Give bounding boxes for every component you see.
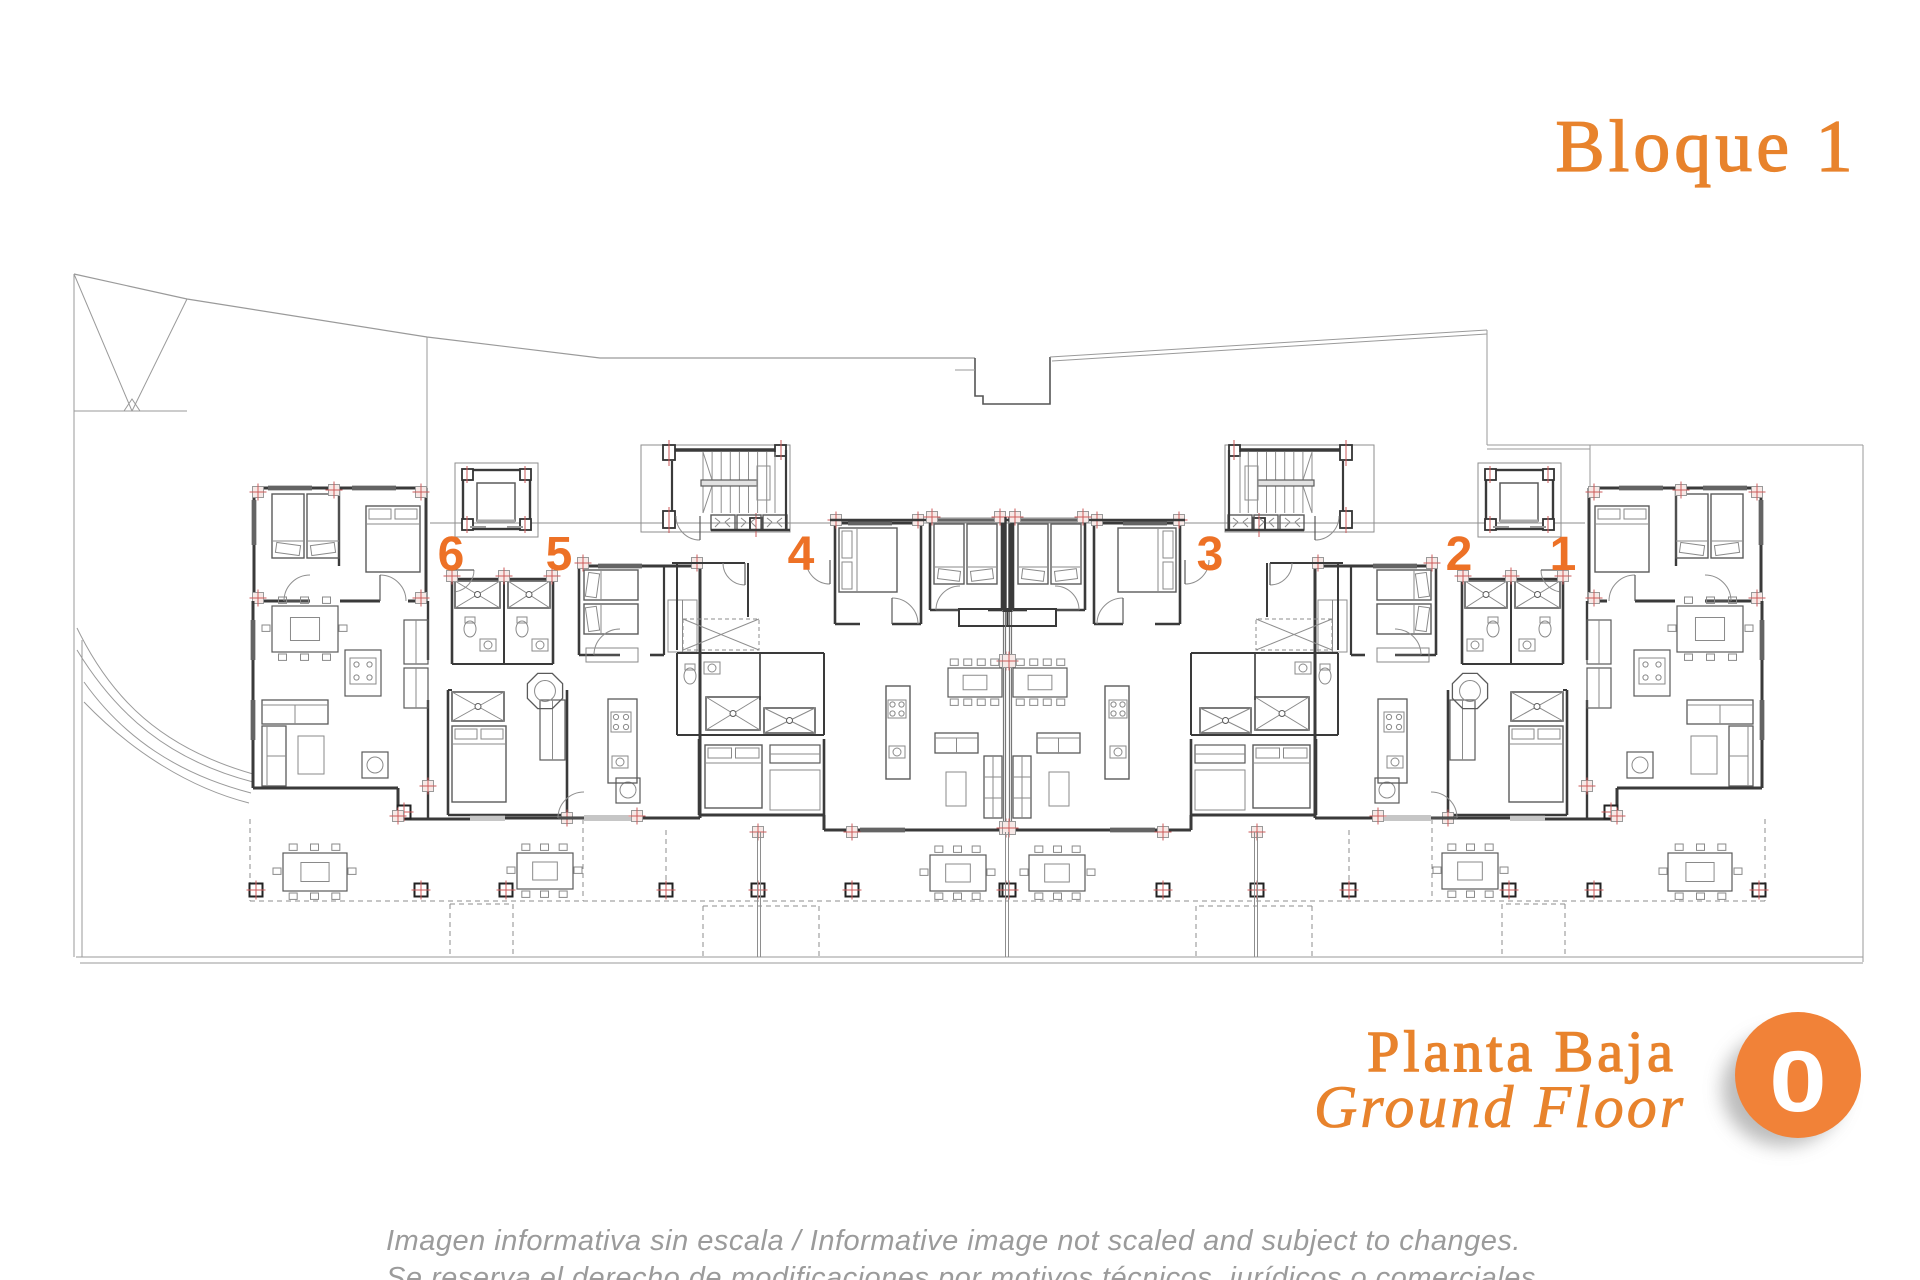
svg-text:6: 6 bbox=[438, 528, 465, 581]
svg-text:0: 0 bbox=[1769, 1034, 1826, 1130]
svg-text:5: 5 bbox=[546, 528, 573, 581]
svg-text:Bloque 1: Bloque 1 bbox=[1555, 106, 1856, 188]
svg-text:2: 2 bbox=[1446, 528, 1473, 581]
svg-text:Imagen informativa sin escala: Imagen informativa sin escala / Informat… bbox=[386, 1225, 1521, 1257]
svg-text:1: 1 bbox=[1550, 528, 1577, 581]
svg-text:3: 3 bbox=[1197, 528, 1224, 581]
svg-text:Se reserva el derecho de modif: Se reserva el derecho de modificaciones … bbox=[386, 1262, 1544, 1280]
svg-text:4: 4 bbox=[788, 528, 815, 581]
svg-text:Ground Floor: Ground Floor bbox=[1314, 1074, 1686, 1140]
